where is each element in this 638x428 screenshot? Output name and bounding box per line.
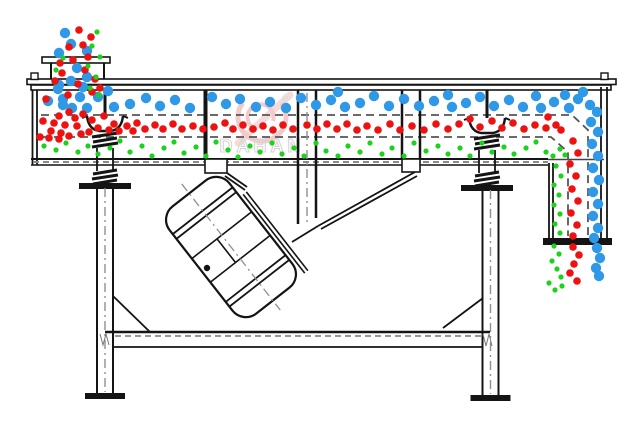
particle-blue — [429, 96, 439, 106]
particle-blue — [399, 94, 409, 104]
particle-red — [74, 80, 82, 88]
particle-green — [60, 55, 65, 60]
particle-red — [229, 125, 237, 133]
particle-red — [36, 133, 44, 141]
particle-green — [247, 143, 252, 148]
particle-red — [444, 125, 452, 133]
particle-blue — [504, 95, 514, 105]
particle-green — [523, 145, 528, 150]
particle-green — [269, 140, 274, 145]
particle-blue — [103, 86, 113, 96]
particle-red — [115, 127, 123, 135]
particle-blue — [369, 91, 379, 101]
particle-red — [45, 134, 53, 142]
particle-blue — [333, 87, 343, 97]
particle-blue — [355, 98, 365, 108]
particle-green — [552, 287, 557, 292]
particle-blue — [207, 92, 217, 102]
particle-red — [85, 128, 93, 136]
particle-green — [411, 140, 416, 145]
particle-red — [476, 123, 484, 131]
diagram-canvas: DAHAN ® — [0, 0, 638, 428]
particle-green — [93, 74, 98, 79]
particle-red — [61, 121, 69, 129]
particle-red — [100, 112, 108, 120]
particle-blue — [531, 91, 541, 101]
particle-blue — [589, 233, 599, 243]
particle-red — [570, 260, 578, 268]
particle-red — [498, 124, 506, 132]
particle-blue — [588, 163, 598, 173]
particle-red — [432, 120, 440, 128]
particle-green — [89, 43, 94, 48]
particle-blue — [311, 100, 321, 110]
particle-green — [549, 258, 554, 263]
particle-blue — [265, 97, 275, 107]
particle-blue — [578, 87, 588, 97]
particle-green — [149, 153, 154, 158]
particle-red — [323, 120, 331, 128]
particle-green — [85, 143, 90, 148]
particle-red — [575, 251, 583, 259]
particle-blue — [185, 103, 195, 113]
hanger-bracket-left — [205, 159, 227, 173]
particle-blue — [593, 223, 603, 233]
particle-red — [574, 149, 582, 157]
particle-green — [181, 150, 186, 155]
particle-red — [572, 172, 580, 180]
particle-blue — [414, 101, 424, 111]
particle-red — [573, 221, 581, 229]
particle-red — [65, 43, 73, 51]
particle-green — [467, 153, 472, 158]
particle-green — [85, 63, 90, 68]
particle-green — [193, 144, 198, 149]
particle-green — [457, 145, 462, 150]
particle-red — [249, 125, 257, 133]
particle-green — [335, 153, 340, 158]
particle-green — [107, 145, 112, 150]
cover-lip-right — [601, 73, 608, 80]
particle-red — [542, 124, 550, 132]
particle-red — [303, 121, 311, 129]
particle-red — [88, 116, 96, 124]
particle-red — [169, 120, 177, 128]
particle-red — [84, 53, 92, 61]
particle-red — [386, 120, 394, 128]
particle-green — [554, 266, 559, 271]
particle-blue — [586, 117, 596, 127]
particle-blue — [60, 28, 70, 38]
particle-red — [73, 122, 81, 130]
particle-green — [546, 280, 551, 285]
particle-red — [65, 132, 73, 140]
particle-red — [133, 119, 141, 127]
particle-green — [203, 153, 208, 158]
top-cover — [27, 73, 616, 90]
particle-red — [363, 122, 371, 130]
particle-red — [55, 112, 63, 120]
particle-red — [313, 125, 321, 133]
particle-blue — [221, 99, 231, 109]
particle-red — [47, 127, 55, 135]
particle-blue — [593, 199, 603, 209]
cover-lip-left — [31, 73, 38, 80]
particle-red — [531, 121, 539, 129]
particle-green — [127, 149, 132, 154]
particle-red — [71, 114, 79, 122]
particle-red — [343, 120, 351, 128]
particle-red — [55, 135, 63, 143]
particle-red — [51, 77, 59, 85]
particle-green — [551, 202, 556, 207]
particle-red — [574, 197, 582, 205]
particle-green — [235, 154, 240, 159]
particle-green — [511, 151, 516, 156]
particle-red — [39, 117, 47, 125]
beam-brace-left — [113, 296, 150, 332]
particle-blue — [594, 271, 604, 281]
particle-red — [569, 232, 577, 240]
particle-red — [105, 126, 113, 134]
particle-blue — [443, 90, 453, 100]
particle-blue — [125, 99, 135, 109]
particle-red — [42, 95, 50, 103]
particle-blue — [593, 151, 603, 161]
particle-red — [94, 124, 102, 132]
particle-green — [557, 146, 562, 151]
particle-blue — [588, 211, 598, 221]
particle-blue — [53, 84, 63, 94]
particle-green — [553, 163, 558, 168]
particle-green — [551, 243, 556, 248]
particle-red — [141, 125, 149, 133]
particle-red — [151, 121, 159, 129]
particle-red — [58, 69, 66, 77]
particle-green — [75, 149, 80, 154]
particle-red — [333, 125, 341, 133]
deck-bottom — [31, 159, 604, 165]
particle-green — [345, 143, 350, 148]
particle-green — [379, 151, 384, 156]
particle-blue — [536, 103, 546, 113]
particle-blue — [447, 102, 457, 112]
particle-red — [455, 120, 463, 128]
particle-green — [551, 182, 556, 187]
particle-blue — [588, 187, 598, 197]
particle-green — [558, 274, 563, 279]
particle-blue — [251, 102, 261, 112]
particle-green — [552, 221, 557, 226]
particle-red — [96, 84, 104, 92]
particle-green — [367, 140, 372, 145]
particle-blue — [170, 95, 180, 105]
particle-green — [94, 29, 99, 34]
particle-green — [389, 145, 394, 150]
particle-blue — [340, 102, 350, 112]
particle-red — [573, 277, 581, 285]
particle-red — [289, 125, 297, 133]
particle-green — [139, 143, 144, 148]
particle-red — [64, 91, 72, 99]
particle-blue — [564, 103, 574, 113]
particle-green — [556, 251, 561, 256]
particle-green — [445, 151, 450, 156]
particle-blue — [58, 100, 68, 110]
particle-blue — [592, 107, 602, 117]
particle-blue — [593, 127, 603, 137]
box-wall-left — [33, 90, 38, 165]
support-leg-right — [471, 188, 511, 401]
box-wall-right — [601, 87, 607, 238]
particle-green — [291, 145, 296, 150]
particle-red — [259, 122, 267, 130]
particle-green — [213, 139, 218, 144]
particle-red — [408, 122, 416, 130]
particle-green — [96, 92, 101, 97]
upper-screen-mesh — [41, 115, 588, 236]
particle-red — [199, 125, 207, 133]
particle-green — [489, 149, 494, 154]
particle-red — [129, 127, 137, 135]
particle-green — [161, 145, 166, 150]
particle-green — [257, 149, 262, 154]
particle-green — [357, 149, 362, 154]
particle-green — [63, 140, 68, 145]
watermark-logo: DAHAN ® — [220, 84, 305, 156]
particle-blue — [475, 92, 485, 102]
base-beam — [100, 332, 492, 347]
beam-brace-right — [443, 298, 483, 328]
particle-red — [75, 26, 83, 34]
particle-red — [239, 121, 247, 129]
particle-green — [301, 153, 306, 158]
particle-red — [210, 123, 218, 131]
particle-red — [396, 126, 404, 134]
particle-red — [79, 41, 87, 49]
particle-green — [225, 147, 230, 152]
particle-red — [123, 122, 131, 130]
particle-blue — [461, 98, 471, 108]
particle-green — [97, 54, 102, 59]
particle-green — [559, 283, 564, 288]
particle-red — [420, 126, 428, 134]
particle-red — [544, 113, 552, 121]
particle-red — [466, 115, 474, 123]
particle-red — [79, 110, 87, 118]
screen-mesh-layers — [41, 115, 588, 236]
particle-green — [87, 85, 92, 90]
particle-blue — [587, 139, 597, 149]
particle-red — [110, 120, 118, 128]
hanger-bracket-right — [402, 159, 420, 172]
particle-green — [313, 140, 318, 145]
particle-green — [550, 153, 555, 158]
particle-red — [77, 130, 85, 138]
particle-green — [479, 140, 484, 145]
particle-red — [269, 126, 277, 134]
particle-red — [65, 108, 73, 116]
particle-green — [556, 192, 561, 197]
particle-blue — [141, 93, 151, 103]
particle-red — [557, 126, 565, 134]
particle-blue — [518, 102, 528, 112]
particle-blue — [326, 95, 336, 105]
chute-wall-left — [549, 163, 553, 238]
particle-blue — [235, 94, 245, 104]
particle-green — [533, 139, 538, 144]
particle-green — [117, 138, 122, 143]
particle-blue — [75, 92, 85, 102]
motor-shaft-dot — [204, 265, 210, 271]
particle-blue — [560, 90, 570, 100]
particle-red — [87, 33, 95, 41]
particle-red — [279, 121, 287, 129]
particle-green — [95, 151, 100, 156]
particle-green — [279, 151, 284, 156]
particle-green — [557, 230, 562, 235]
particle-green — [401, 153, 406, 158]
particle-blue — [296, 93, 306, 103]
particle-red — [566, 160, 574, 168]
particles-red — [36, 26, 583, 285]
particle-red — [569, 137, 577, 145]
particle-green — [171, 139, 176, 144]
particle-red — [567, 209, 575, 217]
support-leg-left — [85, 186, 125, 399]
particle-red — [509, 119, 517, 127]
particle-red — [566, 269, 574, 277]
particle-green — [543, 149, 548, 154]
particle-red — [520, 125, 528, 133]
particle-blue — [72, 63, 82, 73]
particle-green — [53, 67, 58, 72]
particle-blue — [281, 103, 291, 113]
particle-red — [50, 119, 58, 127]
particle-blue — [592, 243, 602, 253]
particle-blue — [549, 97, 559, 107]
particle-blue — [384, 101, 394, 111]
particle-green — [323, 148, 328, 153]
particle-green — [501, 144, 506, 149]
particle-red — [374, 126, 382, 134]
particle-red — [221, 119, 229, 127]
particle-red — [189, 122, 197, 130]
particles-blue — [43, 28, 605, 281]
particle-red — [488, 117, 496, 125]
particle-green — [423, 148, 428, 153]
particle-green — [435, 143, 440, 148]
particle-blue — [489, 101, 499, 111]
particle-red — [568, 185, 576, 193]
particle-blue — [594, 175, 604, 185]
particle-green — [53, 147, 58, 152]
particle-green — [41, 143, 46, 148]
particle-green — [557, 211, 562, 216]
particle-blue — [155, 101, 165, 111]
particle-green — [558, 173, 563, 178]
particle-blue — [595, 253, 605, 263]
particle-green — [562, 152, 567, 157]
particle-red — [178, 125, 186, 133]
spring-mount-left — [79, 116, 131, 189]
particle-red — [69, 56, 77, 64]
particle-red — [569, 243, 577, 251]
vibrating-screen-diagram: DAHAN ® — [0, 0, 638, 428]
particle-blue — [109, 102, 119, 112]
particle-red — [159, 125, 167, 133]
particle-red — [353, 126, 361, 134]
